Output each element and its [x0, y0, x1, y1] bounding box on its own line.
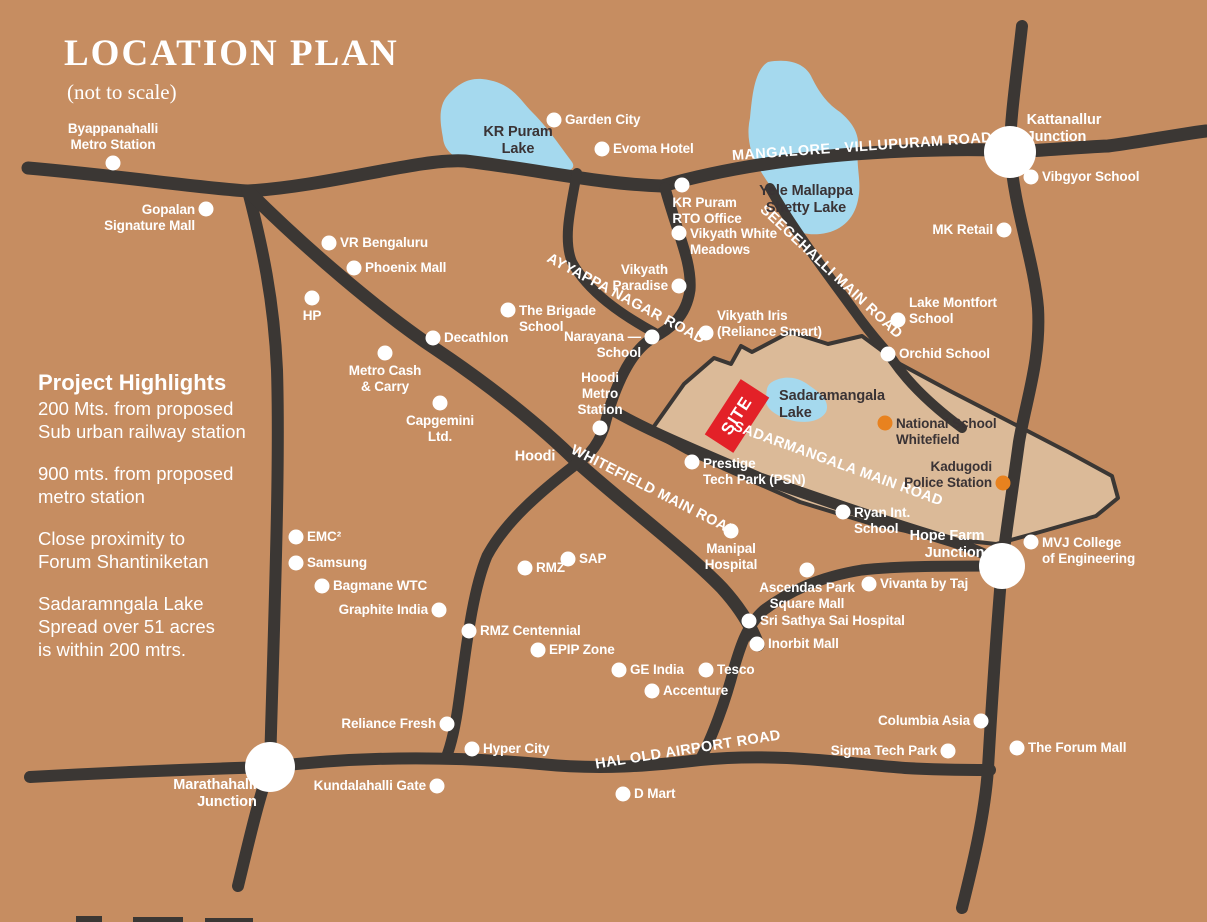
place-label: HP	[303, 308, 322, 324]
hal-old-airport-road	[30, 757, 990, 777]
place-label: Vikyath White Meadows	[690, 226, 777, 258]
hope-farm-junction-circle	[979, 543, 1025, 589]
highlight-item: 900 mts. from proposed metro station	[38, 463, 268, 509]
place-label: Accenture	[663, 683, 728, 699]
place-label: KR Puram Lake	[483, 124, 552, 158]
place-label: Phoenix Mall	[365, 260, 446, 276]
place-label: Ryan Int. School	[854, 505, 910, 537]
place-label: Narayana — School	[564, 329, 641, 361]
place-label: Sigma Tech Park	[831, 743, 937, 759]
place-label: Graphite India	[339, 602, 428, 618]
place-label: Metro Cash & Carry	[349, 363, 422, 395]
place-label: Samsung	[307, 555, 367, 571]
project-highlights: Project Highlights 200 Mts. from propose…	[38, 370, 268, 680]
location-plan-map: LOCATION PLAN (not to scale) Project Hig…	[0, 0, 1207, 922]
white-place-dot	[699, 663, 714, 678]
white-place-dot	[1024, 170, 1039, 185]
place-label: Garden City	[565, 112, 640, 128]
page-title: LOCATION PLAN	[64, 32, 399, 75]
place-label: Hyper City	[483, 741, 550, 757]
white-place-dot	[881, 347, 896, 362]
white-place-dot	[1010, 741, 1025, 756]
highlight-item: Close proximity to Forum Shantiniketan	[38, 528, 268, 574]
place-label: Hope Farm Junction	[910, 528, 985, 562]
place-label: Orchid School	[899, 346, 990, 362]
white-place-dot	[440, 717, 455, 732]
white-place-dot	[430, 779, 445, 794]
white-place-dot	[305, 291, 320, 306]
white-place-dot	[518, 561, 533, 576]
place-label: Sri Sathya Sai Hospital	[760, 613, 905, 629]
cropped-text-remnant	[133, 917, 183, 922]
white-place-dot	[724, 524, 739, 539]
white-place-dot	[645, 684, 660, 699]
white-place-dot	[750, 637, 765, 652]
white-place-dot	[997, 223, 1012, 238]
place-label: KR Puram RTO Office	[672, 195, 741, 227]
white-place-dot	[322, 236, 337, 251]
place-label: Capgemini Ltd.	[406, 413, 474, 445]
white-place-dot	[501, 303, 516, 318]
orange-place-dot	[878, 416, 893, 431]
place-label: EPIP Zone	[549, 642, 615, 658]
place-label: Ascendas Park Square Mall	[759, 580, 855, 612]
place-label: GE India	[630, 662, 684, 678]
place-label: SAP	[579, 551, 606, 567]
place-label: Gopalan Signature Mall	[104, 202, 195, 234]
place-label: Lake Montfort School	[909, 295, 997, 327]
place-label: Kadugodi Police Station	[904, 459, 992, 491]
place-label: Manipal Hospital	[705, 541, 757, 573]
white-place-dot	[289, 530, 304, 545]
white-place-dot	[891, 313, 906, 328]
project-highlights-items: 200 Mts. from proposed Sub urban railway…	[38, 398, 268, 661]
white-place-dot	[685, 455, 700, 470]
place-label: MVJ College of Engineering	[1042, 535, 1135, 567]
place-label: Vikyath Iris (Reliance Smart)	[717, 308, 822, 340]
white-place-dot	[941, 744, 956, 759]
white-place-dot	[862, 577, 877, 592]
place-label: Hoodi Metro Station	[577, 370, 622, 418]
place-label: Reliance Fresh	[341, 716, 436, 732]
white-place-dot	[672, 226, 687, 241]
place-label: Tesco	[717, 662, 755, 678]
white-place-dot	[462, 624, 477, 639]
place-label: D Mart	[634, 786, 675, 802]
white-place-dot	[672, 279, 687, 294]
white-place-dot	[378, 346, 393, 361]
place-label: Evoma Hotel	[613, 141, 694, 157]
place-label: National School Whitefield	[896, 416, 997, 448]
place-label: Vikyath Paradise	[613, 262, 669, 294]
orange-place-dot	[996, 476, 1011, 491]
white-place-dot	[612, 663, 627, 678]
place-label: RMZ	[536, 560, 565, 576]
white-place-dot	[426, 331, 441, 346]
white-place-dot	[836, 505, 851, 520]
place-label: EMC²	[307, 529, 341, 545]
page-subtitle: (not to scale)	[67, 80, 177, 105]
white-place-dot	[465, 742, 480, 757]
white-place-dot	[289, 556, 304, 571]
white-place-dot	[742, 614, 757, 629]
white-place-dot	[432, 603, 447, 618]
white-place-dot	[199, 202, 214, 217]
white-place-dot	[699, 326, 714, 341]
highlight-item: Sadaramngala Lake Spread over 51 acres i…	[38, 593, 268, 662]
white-place-dot	[645, 330, 660, 345]
cropped-text-remnant	[76, 916, 102, 922]
place-label: RMZ Centennial	[480, 623, 581, 639]
place-label: Sadaramangala Lake	[779, 388, 885, 422]
place-label: Hoodi	[515, 448, 556, 465]
white-place-dot	[595, 142, 610, 157]
project-highlights-title: Project Highlights	[38, 370, 268, 396]
white-place-dot	[616, 787, 631, 802]
white-place-dot	[106, 156, 121, 171]
place-label: Prestige Tech Park (PSN)	[703, 456, 806, 488]
place-label: VR Bengaluru	[340, 235, 428, 251]
white-place-dot	[675, 178, 690, 193]
white-place-dot	[1024, 535, 1039, 550]
place-label: Kundalahalli Gate	[314, 778, 426, 794]
place-label: Inorbit Mall	[768, 636, 839, 652]
white-place-dot	[593, 421, 608, 436]
white-place-dot	[347, 261, 362, 276]
place-label: The Forum Mall	[1028, 740, 1126, 756]
place-label: Decathlon	[444, 330, 508, 346]
white-place-dot	[974, 714, 989, 729]
place-label: Bagmane WTC	[333, 578, 427, 594]
white-place-dot	[531, 643, 546, 658]
cropped-text-remnant	[205, 918, 253, 922]
place-label: Columbia Asia	[878, 713, 970, 729]
place-label: MK Retail	[932, 222, 993, 238]
place-label: Vibgyor School	[1042, 169, 1139, 185]
place-label: Marathahalli Junction	[173, 777, 256, 811]
place-label: Kattanallur Junction	[1027, 112, 1102, 146]
place-label: Vivanta by Taj	[880, 576, 968, 592]
highlight-item: 200 Mts. from proposed Sub urban railway…	[38, 398, 268, 444]
place-label: Byappanahalli Metro Station	[68, 121, 158, 153]
white-place-dot	[800, 563, 815, 578]
white-place-dot	[433, 396, 448, 411]
place-label: Yele Mallappa Shetty Lake	[759, 183, 853, 217]
white-place-dot	[315, 579, 330, 594]
